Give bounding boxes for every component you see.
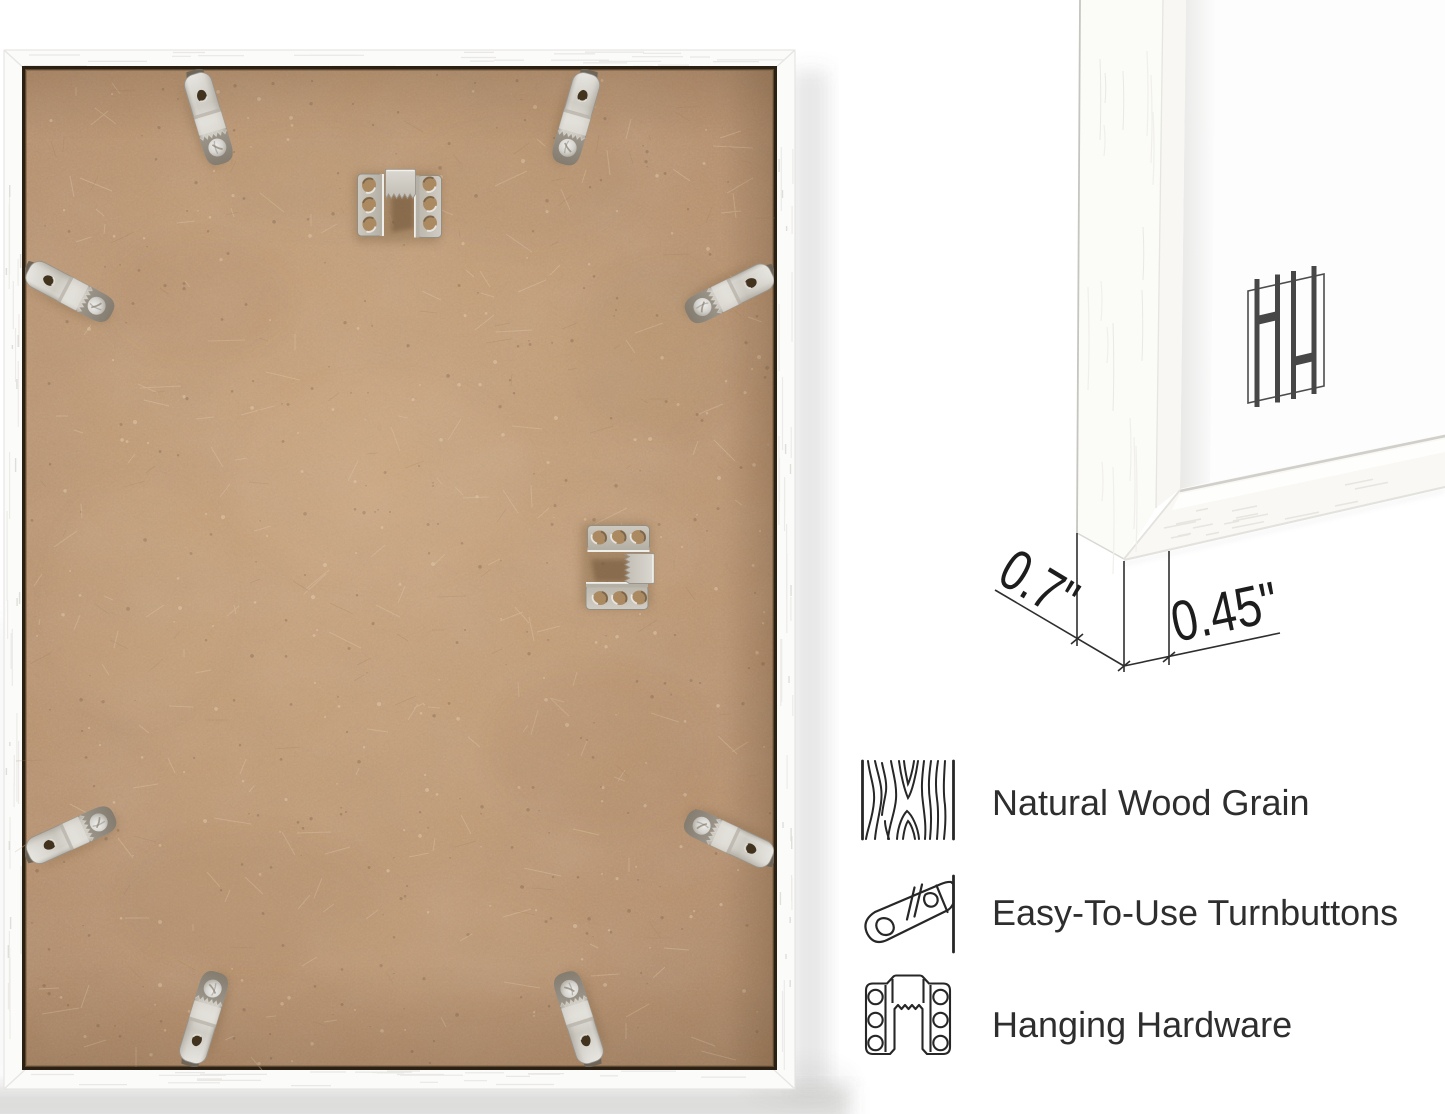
svg-text:Natural Wood Grain: Natural Wood Grain	[992, 782, 1309, 823]
svg-text:Hanging Hardware: Hanging Hardware	[992, 1004, 1292, 1045]
svg-text:Easy-To-Use Turnbuttons: Easy-To-Use Turnbuttons	[992, 892, 1398, 933]
